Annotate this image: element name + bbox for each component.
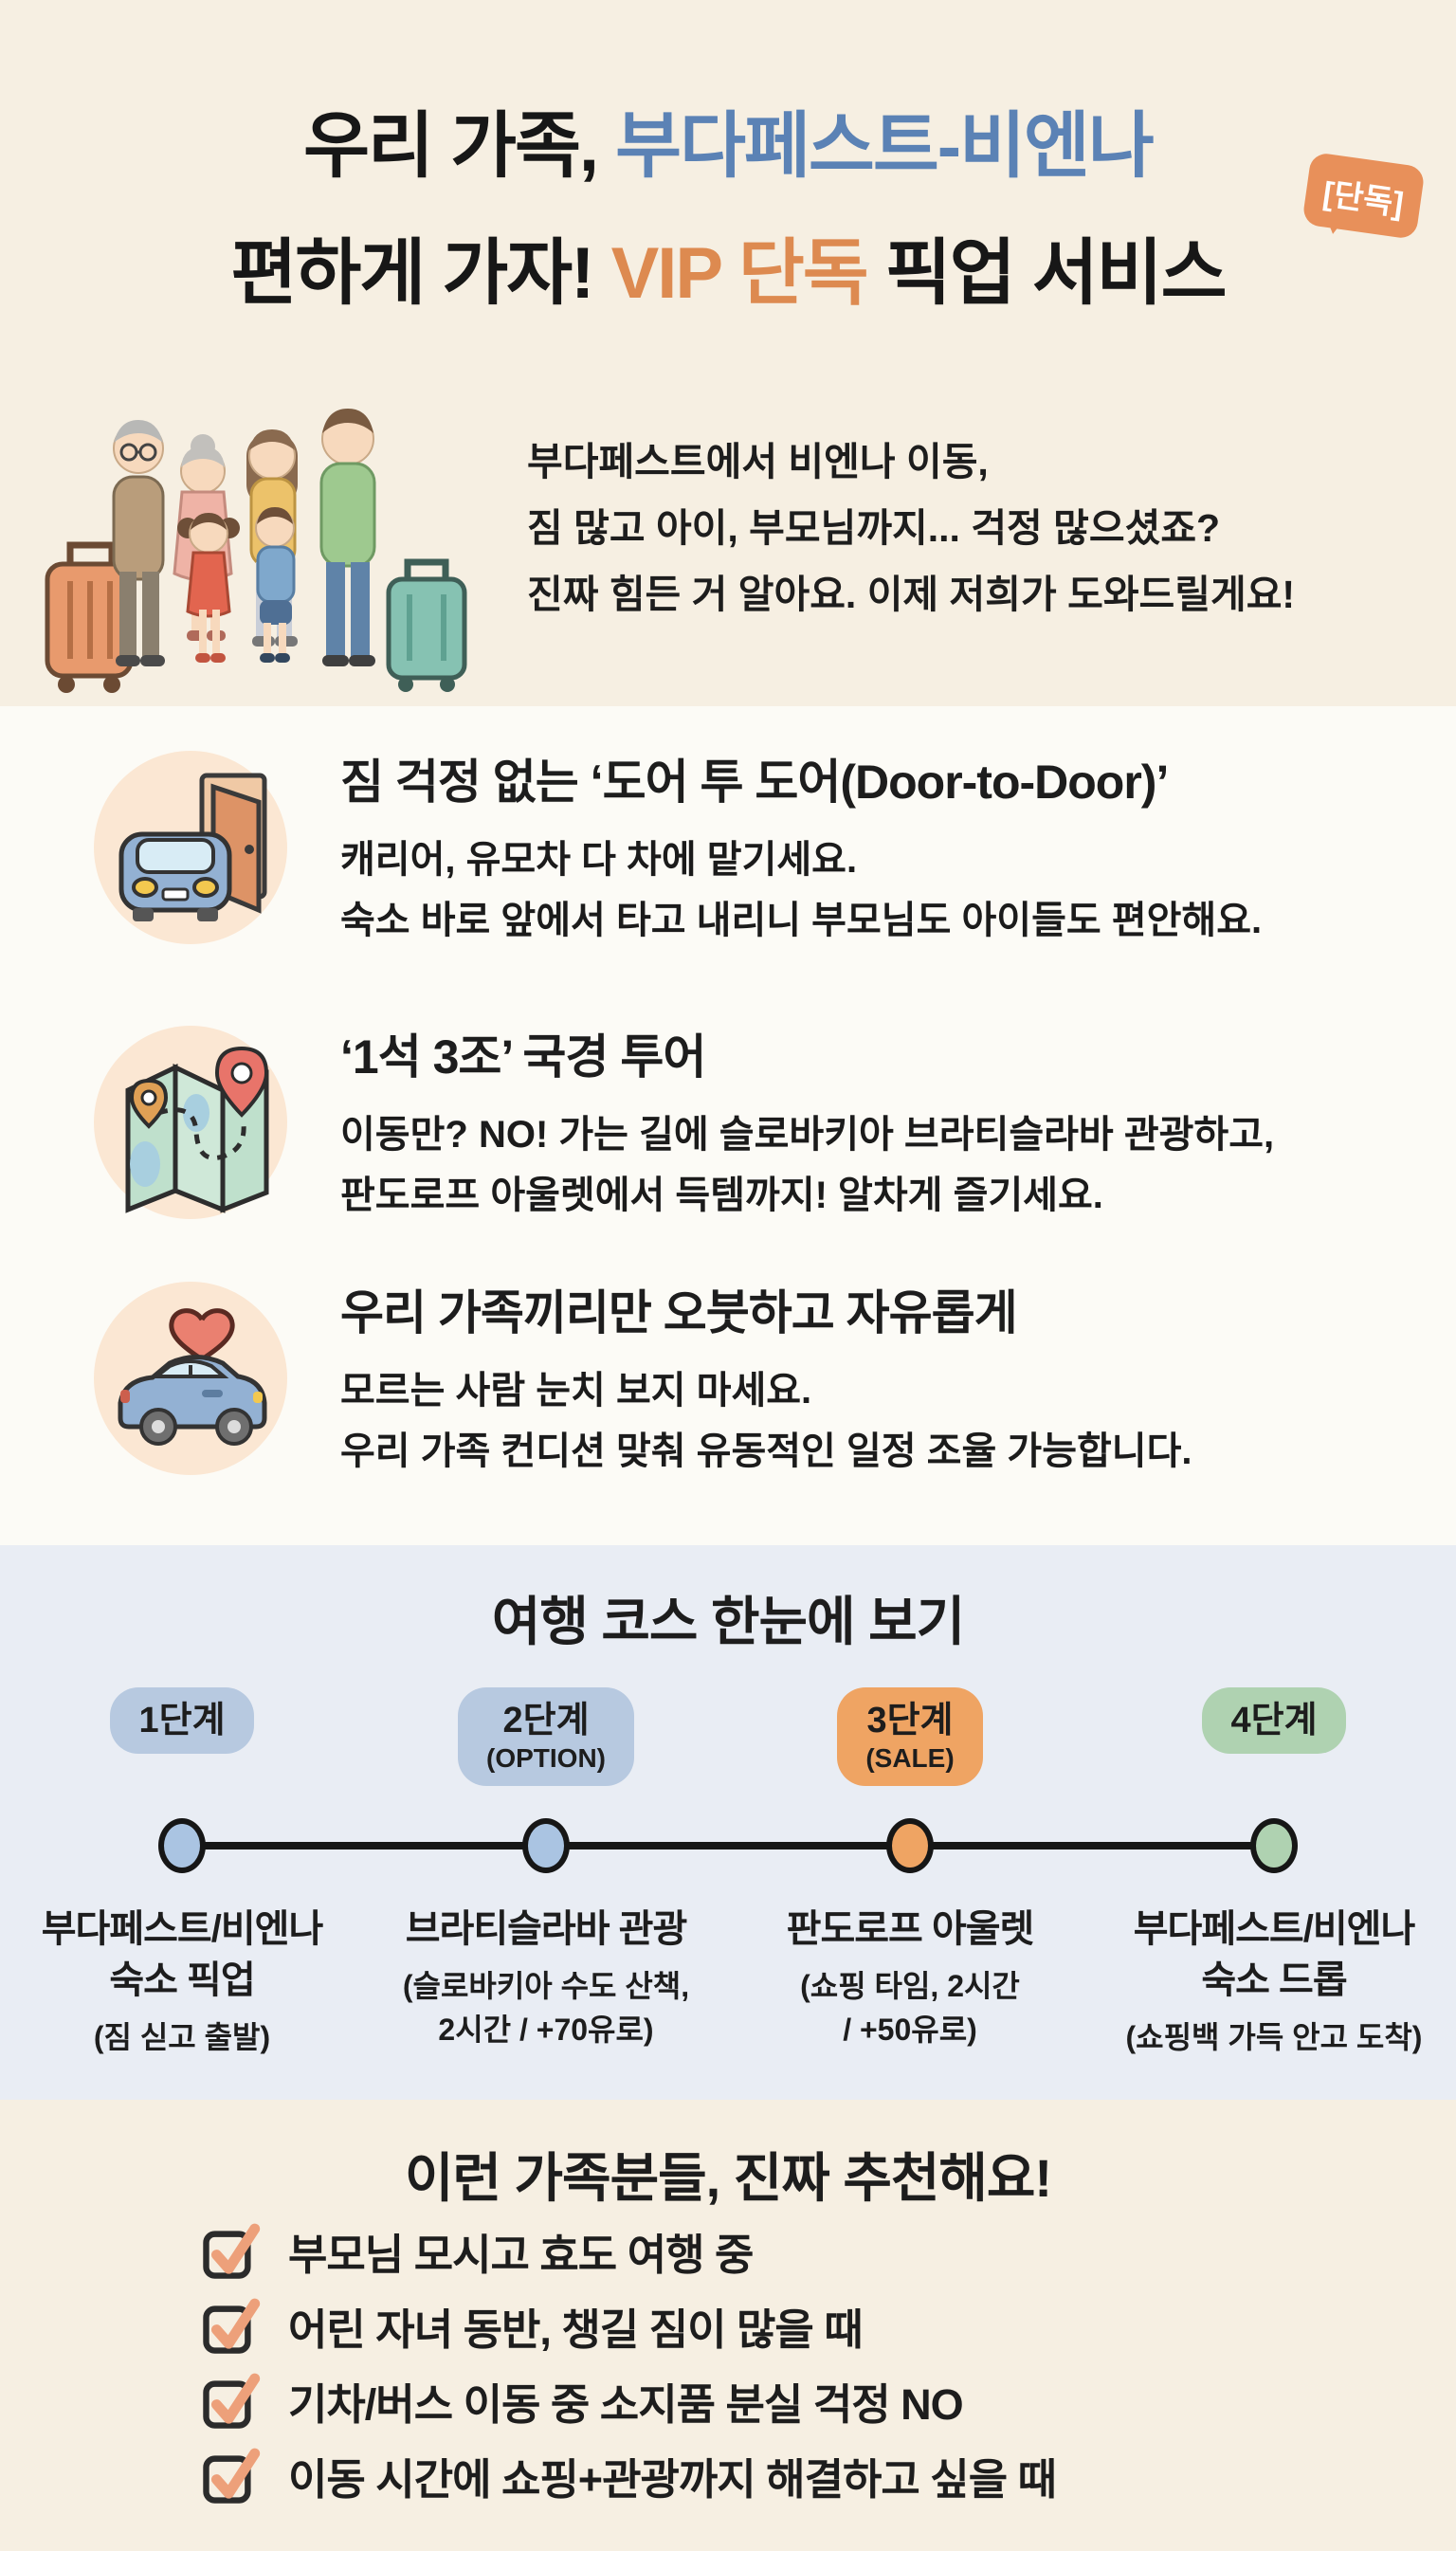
dot-cell — [364, 1813, 728, 1879]
girl-figure — [177, 513, 240, 663]
recommend-list: 부모님 모시고 효도 여행 중 어린 자녀 동반, 챙길 짐이 많을 때 기차/… — [201, 2221, 1056, 2521]
step-detail: (짐 싣고 출발) — [94, 2015, 270, 2059]
stage-label: 3단계 — [865, 1699, 954, 1742]
title-blue: 부다페스트-비엔나 — [615, 106, 1153, 187]
title-line-2: 편하게 가자! VIP 단독 픽업 서비스 — [0, 210, 1456, 337]
car-door-icon — [90, 747, 291, 948]
stage-tag: (SALE) — [865, 1742, 954, 1775]
step-name: 브라티슬라바 관광 — [406, 1904, 687, 1955]
list-item: 어린 자녀 동반, 챙길 짐이 많을 때 — [201, 2296, 1056, 2355]
checkbox-check-icon — [201, 2370, 262, 2431]
timeline-dot-1 — [158, 1818, 206, 1873]
recommend-item-text: 어린 자녀 동반, 챙길 짐이 많을 때 — [288, 2295, 863, 2357]
exclusive-speech-bubble-badge: [단독] — [1301, 152, 1426, 240]
course-timeline: 1단계 2단계 (OPTION) 3단계 (SALE) — [0, 1687, 1456, 2059]
stage-pill-row: 1단계 2단계 (OPTION) 3단계 (SALE) — [0, 1687, 1456, 1786]
title-black-1: 우리 가족, — [303, 106, 615, 187]
title-black-2: 편하게 가자! — [230, 233, 610, 314]
timeline-dot-3 — [886, 1818, 934, 1873]
stage-cell-1: 1단계 — [0, 1687, 364, 1786]
feature-line: 우리 가족 컨디션 맞춰 유동적인 일정 조율 가능합니다. — [340, 1421, 1192, 1482]
badge-label: [단독] — [1320, 175, 1406, 222]
intro-line: 부다페스트에서 비엔나 이동, — [527, 428, 1437, 495]
dot-cell — [0, 1813, 364, 1879]
grandpa-figure — [114, 420, 165, 666]
recommend-title: 이런 가족분들, 진짜 추천해요! — [0, 2136, 1456, 2213]
recommend-item-text: 이동 시간에 쇼핑+관광까지 해결하고 싶을 때 — [288, 2445, 1056, 2506]
step-name: 부다페스트/비엔나숙소 픽업 — [42, 1904, 323, 2006]
feature-line: 숙소 바로 앞에서 타고 내리니 부모님도 아이들도 편안해요. — [340, 890, 1262, 951]
stage-pill: 1단계 — [110, 1687, 253, 1754]
hero-section: 우리 가족, 부다페스트-비엔나 편하게 가자! VIP 단독 픽업 서비스 [… — [0, 0, 1456, 706]
timeline-dots — [0, 1813, 1456, 1879]
step-label-2: 브라티슬라바 관광 (슬로바키아 수도 산책,2시간 / +70유로) — [364, 1904, 728, 2059]
feature-title: 짐 걱정 없는 ‘도어 투 도어(Door-to-Door)’ — [340, 744, 1262, 812]
feature-line: 모르는 사람 눈치 보지 마세요. — [340, 1360, 1192, 1421]
step-detail: (쇼핑백 가득 안고 도착) — [1126, 2015, 1423, 2059]
step-label-1: 부다페스트/비엔나숙소 픽업 (짐 싣고 출발) — [0, 1904, 364, 2059]
recommend-section: 이런 가족분들, 진짜 추천해요! 부모님 모시고 효도 여행 중 어린 자녀 … — [0, 2100, 1456, 2551]
stage-cell-2: 2단계 (OPTION) — [364, 1687, 728, 1786]
stage-label: 2단계 — [486, 1699, 606, 1742]
course-title: 여행 코스 한눈에 보기 — [0, 1579, 1456, 1656]
stage-label: 4단계 — [1230, 1699, 1317, 1742]
step-name: 부다페스트/비엔나숙소 드롭 — [1134, 1904, 1415, 2006]
checkbox-check-icon — [201, 2445, 262, 2505]
timeline-dot-4 — [1250, 1818, 1298, 1873]
intro-line: 진짜 힘든 거 알아요. 이제 저희가 도와드릴게요! — [527, 561, 1437, 628]
map-pins-icon — [90, 1022, 291, 1223]
dot-cell — [1092, 1813, 1456, 1879]
title-black-3: 픽업 서비스 — [867, 233, 1226, 314]
dad-figure — [321, 409, 375, 666]
hero-intro-text: 부다페스트에서 비엔나 이동, 짐 많고 아이, 부모님까지... 걱정 많으셨… — [527, 428, 1437, 628]
stage-pill: 4단계 — [1202, 1687, 1345, 1754]
feature-door-to-door: 짐 걱정 없는 ‘도어 투 도어(Door-to-Door)’ 캐리어, 유모차… — [90, 744, 1417, 951]
course-section: 여행 코스 한눈에 보기 1단계 2단계 (OPTION) — [0, 1545, 1456, 2100]
feature-family-only: 우리 가족끼리만 오붓하고 자유롭게 모르는 사람 눈치 보지 마세요. 우리 … — [90, 1275, 1417, 1482]
stage-tag: (OPTION) — [486, 1742, 606, 1775]
recommend-item-text: 기차/버스 이동 중 소지품 분실 걱정 NO — [288, 2370, 963, 2432]
heart-car-icon — [90, 1278, 291, 1479]
feature-line: 이동만? NO! 가는 길에 슬로바키아 브라티슬라바 관광하고, — [340, 1104, 1274, 1165]
page-title: 우리 가족, 부다페스트-비엔나 편하게 가자! VIP 단독 픽업 서비스 — [0, 83, 1456, 337]
step-name: 판도로프 아울렛 — [787, 1904, 1034, 1955]
feature-text: 우리 가족끼리만 오붓하고 자유롭게 모르는 사람 눈치 보지 마세요. 우리 … — [340, 1275, 1192, 1482]
list-item: 부모님 모시고 효도 여행 중 — [201, 2221, 1056, 2280]
stage-pill: 2단계 (OPTION) — [458, 1687, 634, 1786]
stage-cell-3: 3단계 (SALE) — [728, 1687, 1092, 1786]
feature-border-tour: ‘1석 3조’ 국경 투어 이동만? NO! 가는 길에 슬로바키아 브라티슬라… — [90, 1019, 1417, 1226]
promo-poster: 우리 가족, 부다페스트-비엔나 편하게 가자! VIP 단독 픽업 서비스 [… — [0, 0, 1456, 2551]
step-detail: (쇼핑 타임, 2시간/ +50유로) — [800, 1964, 1020, 2051]
checkbox-check-icon — [201, 2295, 262, 2356]
features-section: 짐 걱정 없는 ‘도어 투 도어(Door-to-Door)’ 캐리어, 유모차… — [0, 706, 1456, 1545]
family-luggage-illustration — [21, 365, 471, 706]
feature-text: 짐 걱정 없는 ‘도어 투 도어(Door-to-Door)’ 캐리어, 유모차… — [340, 744, 1262, 951]
intro-line: 짐 많고 아이, 부모님까지... 걱정 많으셨죠? — [527, 495, 1437, 561]
stage-pill: 3단계 (SALE) — [837, 1687, 982, 1786]
feature-title: ‘1석 3조’ 국경 투어 — [340, 1019, 1274, 1087]
feature-title: 우리 가족끼리만 오붓하고 자유롭게 — [340, 1275, 1192, 1343]
checkbox-check-icon — [201, 2220, 262, 2281]
timeline-track — [0, 1813, 1456, 1879]
timeline-dot-2 — [522, 1818, 570, 1873]
list-item: 기차/버스 이동 중 소지품 분실 걱정 NO — [201, 2371, 1056, 2430]
step-label-3: 판도로프 아울렛 (쇼핑 타임, 2시간/ +50유로) — [728, 1904, 1092, 2059]
step-label-4: 부다페스트/비엔나숙소 드롭 (쇼핑백 가득 안고 도착) — [1092, 1904, 1456, 2059]
title-orange: VIP 단독 — [611, 233, 867, 314]
feature-line: 판도로프 아울렛에서 득템까지! 알차게 즐기세요. — [340, 1165, 1274, 1226]
step-label-row: 부다페스트/비엔나숙소 픽업 (짐 싣고 출발) 브라티슬라바 관광 (슬로바키… — [0, 1904, 1456, 2059]
stage-label: 1단계 — [138, 1699, 225, 1742]
list-item: 이동 시간에 쇼핑+관광까지 해결하고 싶을 때 — [201, 2446, 1056, 2505]
title-line-1: 우리 가족, 부다페스트-비엔나 — [0, 83, 1456, 210]
step-detail: (슬로바키아 수도 산책,2시간 / +70유로) — [403, 1964, 689, 2051]
recommend-item-text: 부모님 모시고 효도 여행 중 — [288, 2220, 753, 2282]
stage-cell-4: 4단계 — [1092, 1687, 1456, 1786]
teal-suitcase-icon — [389, 562, 464, 692]
dot-cell — [728, 1813, 1092, 1879]
feature-text: ‘1석 3조’ 국경 투어 이동만? NO! 가는 길에 슬로바키아 브라티슬라… — [340, 1019, 1274, 1226]
feature-line: 캐리어, 유모차 다 차에 맡기세요. — [340, 829, 1262, 890]
